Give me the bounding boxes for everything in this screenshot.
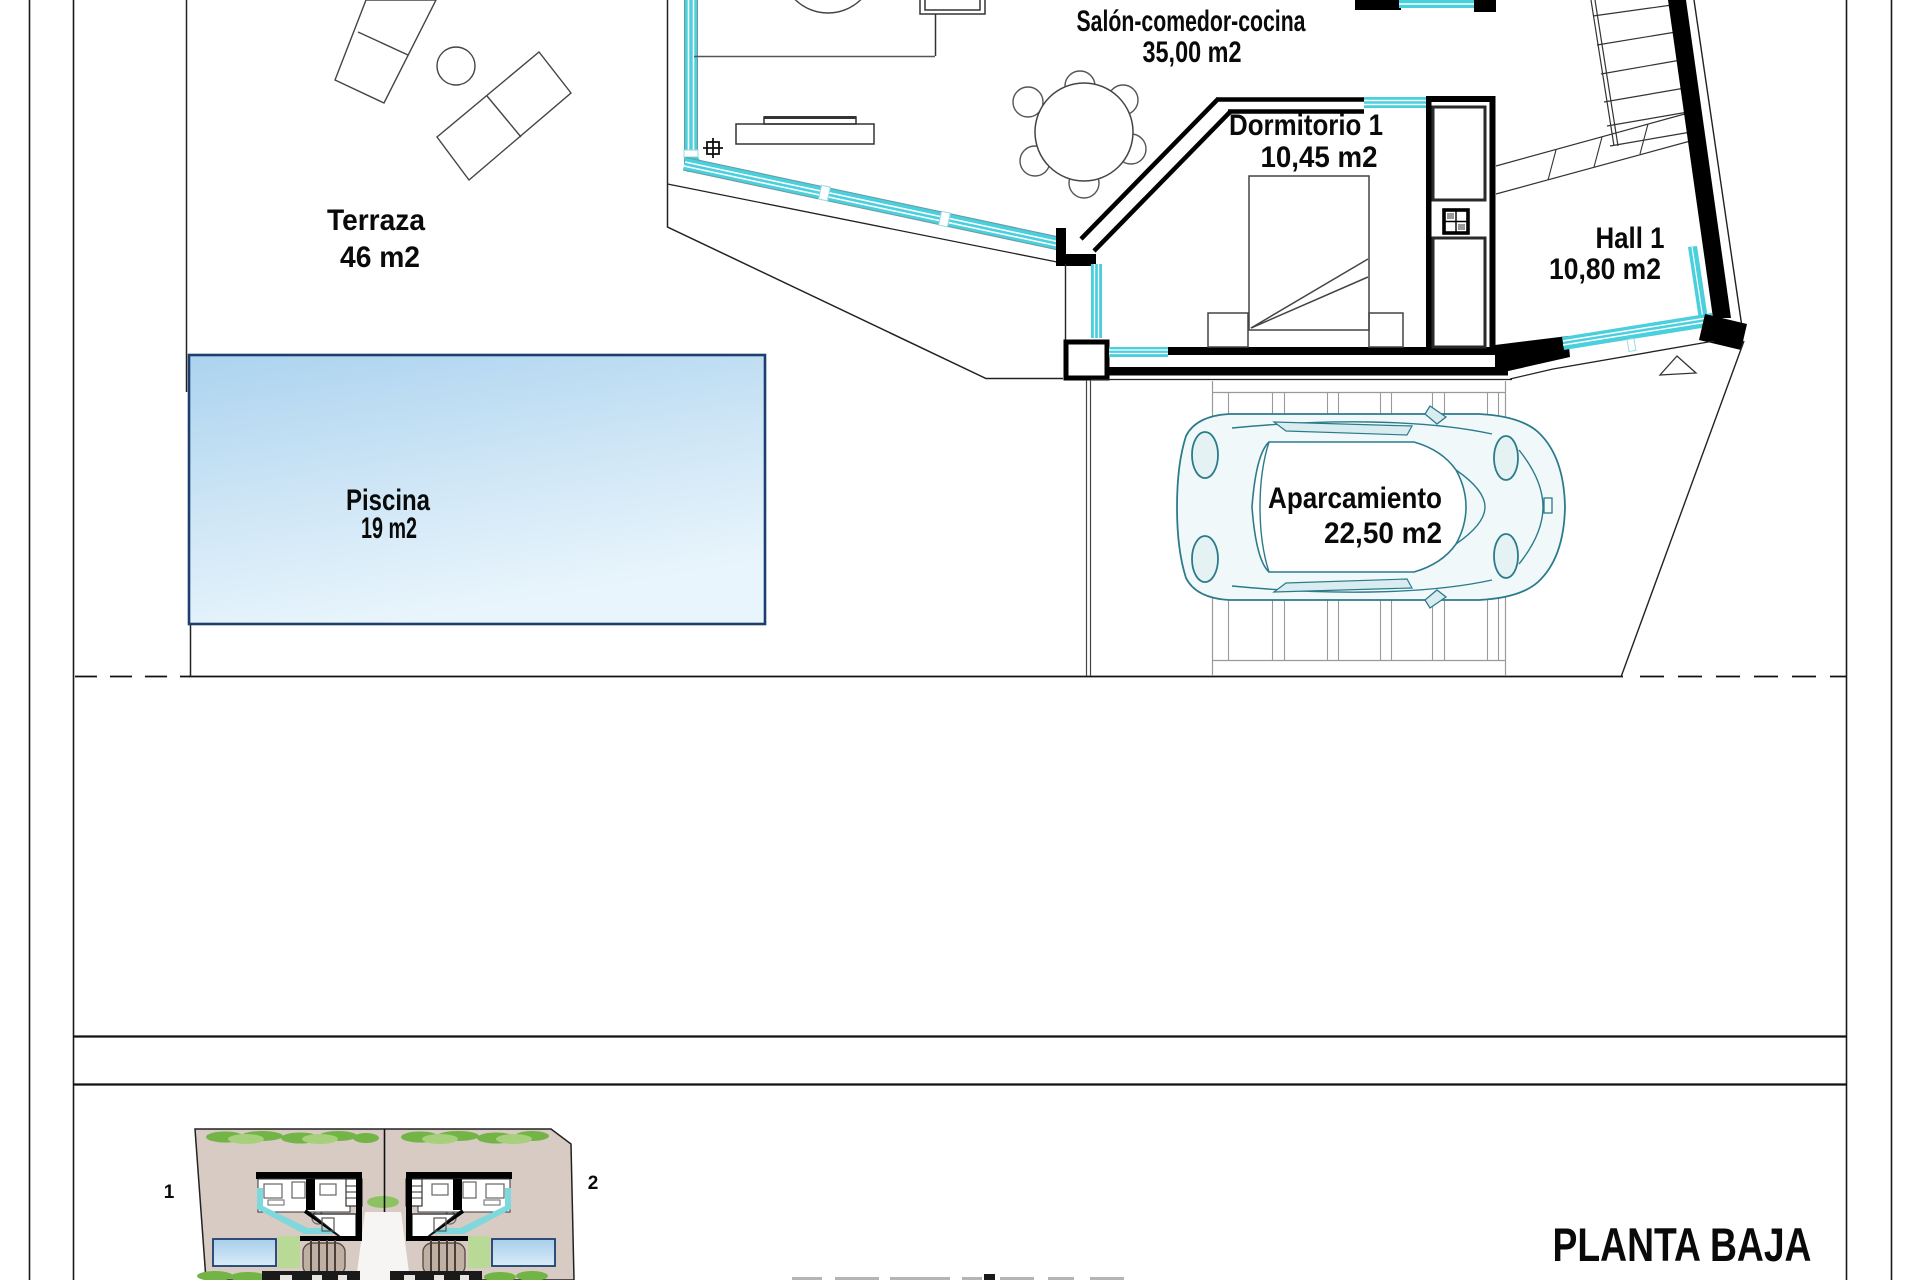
svg-text:Hall 1: Hall 1 — [1596, 222, 1665, 255]
svg-text:PLANTA BAJA: PLANTA BAJA — [1553, 1218, 1812, 1271]
svg-text:22,50 m2: 22,50 m2 — [1324, 517, 1442, 550]
svg-text:Dormitorio 1: Dormitorio 1 — [1229, 109, 1383, 142]
svg-text:2: 2 — [588, 1173, 599, 1194]
svg-text:1: 1 — [164, 1182, 175, 1203]
svg-text:35,00 m2: 35,00 m2 — [1143, 36, 1242, 69]
svg-text:19 m2: 19 m2 — [361, 512, 417, 545]
svg-text:10,80 m2: 10,80 m2 — [1549, 253, 1661, 286]
svg-text:46 m2: 46 m2 — [340, 241, 420, 274]
svg-text:Aparcamiento: Aparcamiento — [1268, 482, 1442, 515]
svg-text:10,45 m2: 10,45 m2 — [1261, 141, 1378, 174]
svg-text:Salón-comedor-cocina: Salón-comedor-cocina — [1077, 5, 1306, 38]
svg-text:Terraza: Terraza — [327, 204, 425, 237]
